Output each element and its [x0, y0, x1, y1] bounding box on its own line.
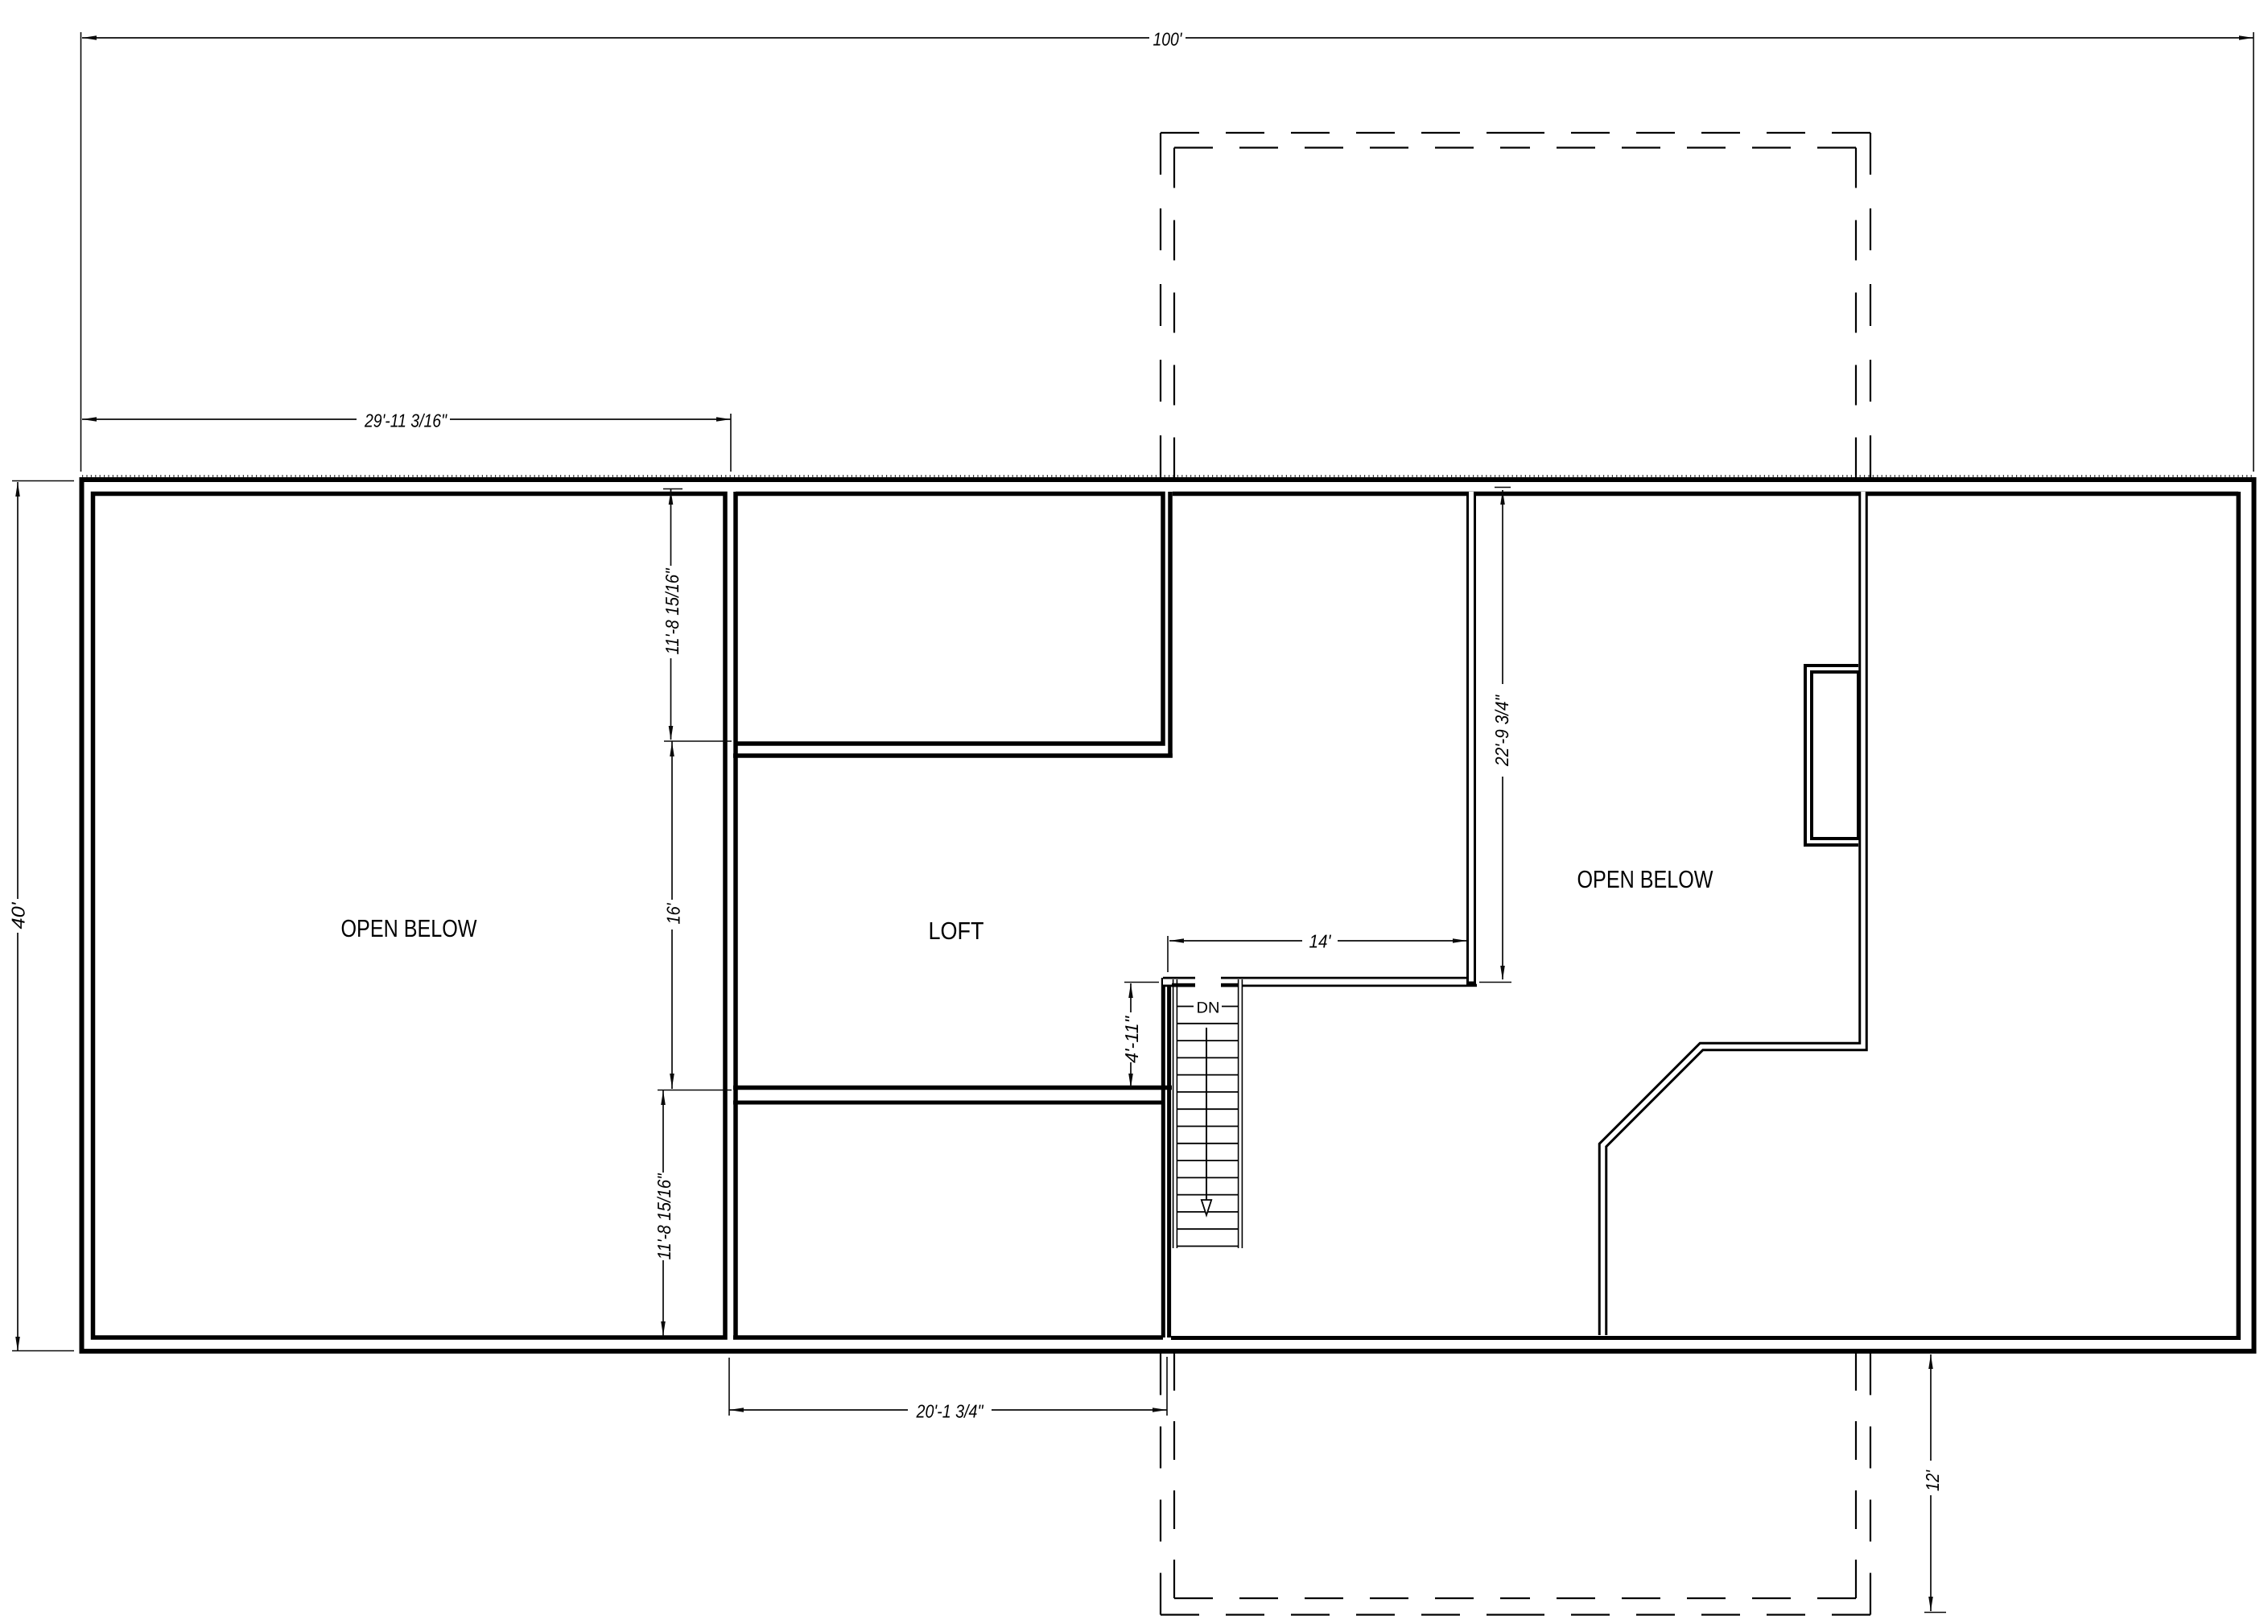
svg-text:11'-8 15/16": 11'-8 15/16" [662, 567, 682, 655]
svg-text:16': 16' [663, 902, 684, 924]
svg-text:20'-1 3/4": 20'-1 3/4" [916, 1401, 984, 1422]
svg-text:4'-11": 4'-11" [1121, 1015, 1142, 1063]
svg-text:DN: DN [1197, 1000, 1220, 1017]
svg-text:22'-9 3/4": 22'-9 3/4" [1491, 694, 1512, 767]
svg-text:29'-11 3/16": 29'-11 3/16" [364, 410, 447, 431]
svg-text:OPEN BELOW: OPEN BELOW [1577, 866, 1713, 893]
svg-text:14': 14' [1309, 931, 1332, 952]
svg-text:11'-8 15/16": 11'-8 15/16" [654, 1173, 674, 1260]
svg-text:100': 100' [1153, 29, 1183, 50]
svg-text:OPEN BELOW: OPEN BELOW [341, 915, 477, 942]
svg-text:12': 12' [1922, 1469, 1943, 1491]
svg-text:40': 40' [8, 901, 29, 929]
svg-text:LOFT: LOFT [929, 917, 984, 945]
